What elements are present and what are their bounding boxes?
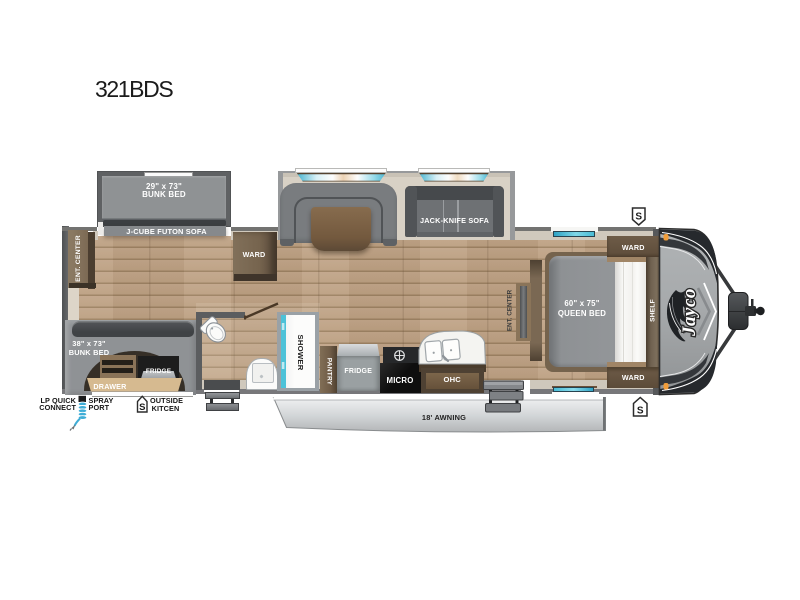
svg-text:S: S — [637, 405, 644, 416]
svg-text:S: S — [139, 402, 145, 413]
svg-text:18' AWNING: 18' AWNING — [422, 413, 466, 422]
svg-text:Jayco: Jayco — [679, 288, 700, 337]
svg-text:S: S — [635, 211, 642, 222]
